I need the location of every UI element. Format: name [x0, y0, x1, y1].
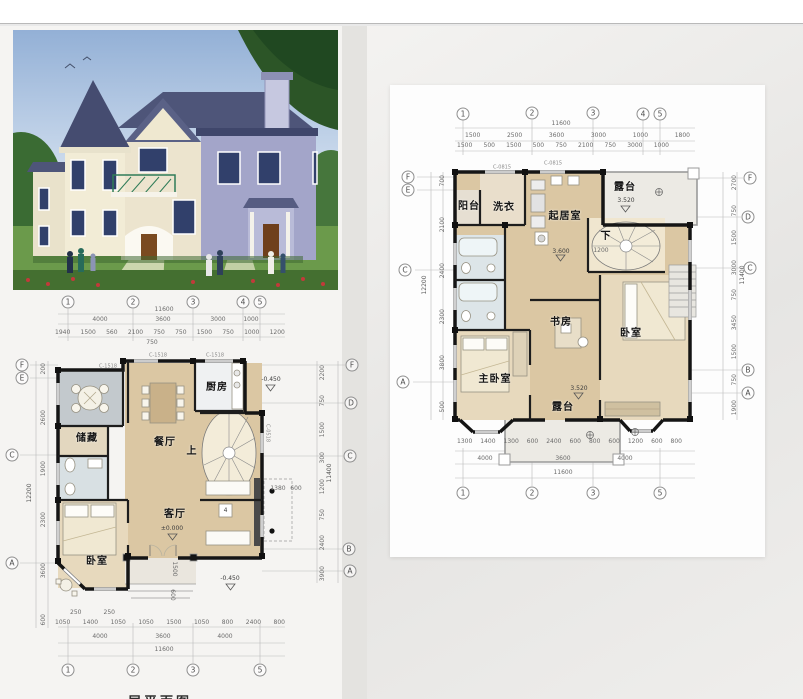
grid-bubble-right-B: B: [343, 543, 356, 556]
dim-label: 800: [222, 619, 233, 626]
porch-post-2: [286, 212, 290, 258]
dim-label: 200: [40, 363, 47, 374]
dim-label: 800: [274, 619, 285, 626]
grid-bubble-bottom-5: 5: [254, 664, 267, 677]
second-floor-plan: 1234511600C-0815C-0815阳台洗衣起居室露台3.520下3.6…: [385, 80, 803, 580]
dim-label: 1940: [55, 329, 70, 336]
grid-bubble-bottom-5: 5: [654, 487, 667, 500]
dim-label: 2100: [439, 217, 446, 232]
room-label-bedroom: 卧室: [86, 557, 108, 567]
dim-label: 600: [169, 589, 175, 600]
dim-label: 1200: [628, 438, 643, 445]
room-label-terrace-top: 露台: [614, 183, 636, 193]
grid-bubble-top-5: 5: [654, 108, 667, 121]
dim-label: 1200: [270, 329, 285, 336]
grid-bubble-bottom-1: 1: [62, 664, 75, 677]
dim-label: 600: [40, 614, 47, 625]
dim-label: 750: [731, 374, 738, 385]
page: 12345116004000360030001000750C-1518C-151…: [0, 0, 803, 699]
dim-label: 300: [319, 452, 326, 463]
elevation-label: 3.520: [570, 386, 587, 392]
top-rule-line: [0, 23, 803, 26]
dim-label: 500: [484, 142, 495, 149]
dim-label: 1000: [633, 132, 648, 139]
dim-label: 2400: [546, 438, 561, 445]
dim-overall-top: 11600: [551, 121, 570, 127]
dim-label: 1500: [81, 329, 96, 336]
room-label-laundry: 洗衣: [493, 203, 515, 213]
dim-label: 800: [589, 438, 600, 445]
dim-label: 4000: [617, 456, 632, 462]
dim-label: 2400: [319, 535, 326, 550]
dim-label: 3000: [627, 142, 642, 149]
dim-label: 2100: [128, 329, 143, 336]
dim-label: 1500: [465, 132, 480, 139]
dim-label: 750: [222, 329, 233, 336]
dims-left: 7002100240023003800500: [437, 175, 447, 413]
dim-label: 3000: [210, 317, 225, 323]
grid-bubble-top-1: 1: [62, 296, 75, 309]
dims-right: 22007501500300120075024003900: [317, 365, 327, 581]
ac-hatch: [669, 265, 696, 317]
tower-eave: [59, 147, 131, 153]
grid-bubble-right-F: F: [346, 359, 359, 372]
side-porch-roof: [243, 198, 299, 208]
dim-label: 3600: [40, 563, 47, 578]
dim-label: 4000: [477, 456, 492, 462]
furniture-marker: 4: [224, 508, 228, 514]
grid-bubble-left-C: C: [399, 264, 412, 277]
dim-label: 2100: [578, 142, 593, 149]
grid-bubble-top-3: 3: [587, 107, 600, 120]
dim-label: 1200: [319, 479, 326, 494]
grid-bubble-right-D: D: [742, 211, 755, 224]
dim-label: 1500: [319, 422, 326, 437]
dim-label: 1500: [166, 619, 181, 626]
dim-label: 3600: [555, 456, 570, 462]
dim-label: 1050: [111, 619, 126, 626]
room-label-living: 客厅: [164, 510, 186, 520]
dim-label: 1000: [244, 329, 259, 336]
grid-bubble-left-F: F: [402, 171, 415, 184]
room-label-master: 主卧室: [479, 375, 512, 385]
grid-bubble-top-5: 5: [254, 296, 267, 309]
stair-down-label: 下: [601, 232, 612, 242]
second-floor-linework: [385, 80, 803, 580]
dim-label: 600: [527, 438, 538, 445]
house-shadow: [33, 256, 303, 263]
room-label-kitchen: 厨房: [206, 383, 228, 393]
chimney-cap: [261, 72, 293, 80]
balcony-slab: [111, 192, 177, 197]
dim-label: 3000: [731, 260, 738, 275]
dim-label: 4000: [217, 634, 232, 640]
grid-bubble-bottom-1: 1: [457, 487, 470, 500]
room-label-dining: 餐厅: [154, 438, 176, 448]
dim-label: 560: [106, 329, 117, 336]
room-label-family: 起居室: [549, 212, 582, 222]
dim-label: 3800: [439, 355, 446, 370]
dim-label: 1000: [243, 317, 258, 323]
dim-overall-left: 12200: [422, 275, 428, 294]
elevation-label: ±0.000: [161, 526, 183, 532]
grid-bubble-right-A: A: [742, 387, 755, 400]
grid-bubble-bottom-3: 3: [187, 664, 200, 677]
dim-label: 1800: [675, 132, 690, 139]
grid-bubble-left-E: E: [16, 372, 29, 385]
elevation-label: -0.450: [261, 377, 280, 383]
grid-bubble-bottom-2: 2: [526, 487, 539, 500]
window-tag: C-1518: [99, 365, 117, 370]
right-roof-eave: [196, 128, 318, 136]
grid-bubble-right-B: B: [742, 364, 755, 377]
dim-label: 750: [319, 509, 326, 520]
elevation-label: 3.520: [617, 198, 634, 204]
villa-rendering-photo: [13, 30, 338, 290]
dim-label: 1400: [480, 438, 495, 445]
room-label-balcony: 阳台: [458, 202, 480, 212]
dim-label: 500: [439, 401, 446, 412]
grid-bubble-left-A: A: [6, 557, 19, 570]
dim-label: 1300: [504, 438, 519, 445]
spiral-stair: [592, 222, 660, 270]
porch-post: [250, 212, 254, 258]
dim-label: 2200: [319, 365, 326, 380]
dim-label: 1050: [55, 619, 70, 626]
elevation-label: 3.600: [552, 249, 569, 255]
dim-label: 2300: [439, 309, 446, 324]
grid-bubble-top-4: 4: [237, 296, 250, 309]
grid-bubble-left-C: C: [6, 449, 19, 462]
dim-label: 750: [153, 329, 164, 336]
grid-bubble-right-F: F: [744, 172, 757, 185]
window-tag: C-0815: [493, 166, 511, 171]
dims-top-major: 150025003600300010001800: [465, 132, 690, 139]
dim-label: 750: [731, 205, 738, 216]
villa-scene: [13, 30, 338, 290]
dim-overall-top: 11600: [154, 307, 173, 313]
dim-label: 500: [533, 142, 544, 149]
dim-label: 3900: [319, 566, 326, 581]
dim-label: 1500: [731, 230, 738, 245]
dim-label: 1500: [197, 329, 212, 336]
left-wing-wall: [33, 172, 67, 256]
dim-label: 3600: [155, 634, 170, 640]
dims-bottom-minor: 1050140010501050150010508002400800: [55, 619, 285, 626]
dim-label: 750: [605, 142, 616, 149]
dim-label: 750: [555, 142, 566, 149]
first-floor-caption: 一层平面图: [112, 691, 208, 699]
grid-bubble-top-4: 4: [637, 108, 650, 121]
dim-label: 3450: [731, 315, 738, 330]
elevation-label: -0.450: [220, 576, 239, 582]
dim-label: 4000: [92, 317, 107, 323]
dim-label: 600: [570, 438, 581, 445]
dim-label: 2300: [40, 512, 47, 527]
grid-bubble-left-A: A: [397, 376, 410, 389]
grid-bubble-bottom-2: 2: [127, 664, 140, 677]
dim-label: 700: [439, 175, 446, 186]
grid-bubble-top-3: 3: [187, 296, 200, 309]
window-tag: C-0518: [265, 424, 270, 442]
grid-bubble-left-E: E: [402, 184, 415, 197]
dim-label: 1900: [40, 461, 47, 476]
grid-bubble-top-1: 1: [457, 108, 470, 121]
room-label-study: 书房: [550, 318, 572, 328]
dim-overall-right: 11400: [740, 265, 746, 284]
dim-label: 1500: [506, 142, 521, 149]
dim-label: 1900: [731, 400, 738, 415]
dim-label: 750: [319, 395, 326, 406]
first-floor-plan: 12345116004000360030001000750C-1518C-151…: [0, 293, 365, 699]
dim-label: 1050: [194, 619, 209, 626]
dim-label: 1200: [593, 248, 608, 254]
dim-label: 2400: [439, 263, 446, 278]
grid-bubble-right-A: A: [344, 565, 357, 578]
room-label-storage: 储藏: [76, 434, 98, 444]
dim-label: 1050: [138, 619, 153, 626]
stair-up-label: 上: [187, 447, 198, 457]
dim-label: 750: [175, 329, 186, 336]
chimney: [265, 78, 289, 136]
dim-label: 3000: [591, 132, 606, 139]
dim-label: 1500: [457, 142, 472, 149]
dim-label: 2700: [731, 175, 738, 190]
caption-text: 一层平面图: [112, 695, 192, 699]
flowerbed: [13, 270, 338, 290]
dim-label: 1500: [171, 561, 177, 576]
room-label-bedroom: 卧室: [620, 329, 642, 339]
dim-label: 3600: [155, 317, 170, 323]
grid-bubble-right-C: C: [344, 450, 357, 463]
dim-label: 2400: [246, 619, 261, 626]
dims-bottom-small: 250250: [70, 609, 115, 616]
dim-label: 2500: [507, 132, 522, 139]
dim-overall-bottom: 11600: [154, 647, 173, 653]
dim-label: 250: [70, 609, 81, 616]
dim-overall-left: 12200: [27, 483, 33, 502]
dim-label: 3600: [549, 132, 564, 139]
dim-label: 1380: [270, 486, 285, 492]
grid-bubble-top-2: 2: [127, 296, 140, 309]
dims-bottom-minor: 13001400130060024006008006001200600800: [457, 438, 682, 445]
dim-label: 800: [671, 438, 682, 445]
dims-right: 270075015003000750345015007501900: [729, 175, 739, 415]
dim-label: 600: [290, 486, 301, 492]
dim-label: 600: [651, 438, 662, 445]
grid-bubble-left-F: F: [16, 359, 29, 372]
window-tag: C-1518: [149, 354, 167, 359]
dim-label: 750: [731, 289, 738, 300]
dim-label: 1300: [457, 438, 472, 445]
grid-bubble-right-D: D: [345, 397, 358, 410]
dim-label: 250: [104, 609, 115, 616]
dim-label: 1400: [83, 619, 98, 626]
dims-top-minor: 194015005602100750750150075010001200: [55, 329, 285, 336]
room-label-terrace-bottom: 露台: [552, 403, 574, 413]
dims-left: 2002600190023003600600: [38, 363, 48, 625]
dim-label: 4000: [92, 634, 107, 640]
dim-label: 2600: [40, 410, 47, 425]
dim-label: 600: [608, 438, 619, 445]
grid-bubble-bottom-3: 3: [587, 487, 600, 500]
dim-overall-bottom: 11600: [553, 470, 572, 476]
grid-bubble-top-2: 2: [526, 107, 539, 120]
dim-label: 750: [146, 340, 157, 346]
dim-label: 1000: [654, 142, 669, 149]
first-floor-linework: [0, 293, 365, 699]
dim-label: 1500: [731, 344, 738, 359]
dims-top-minor: 15005001500500750210075030001000: [457, 142, 669, 149]
window-tag: C-1518: [206, 354, 224, 359]
dim-overall-right: 11400: [327, 463, 333, 482]
window-tag: C-0815: [544, 162, 562, 167]
